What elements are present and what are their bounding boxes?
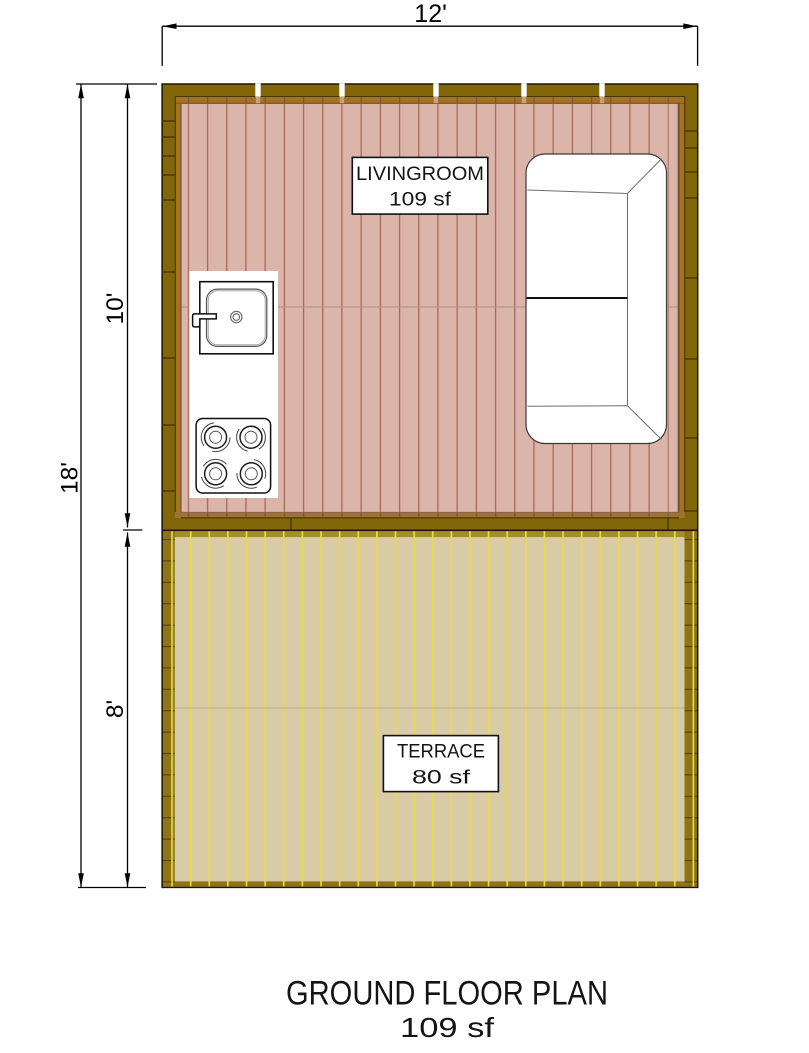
svg-text:LIVINGROOM: LIVINGROOM [356,163,484,185]
svg-text:GROUND FLOOR PLAN: GROUND FLOOR PLAN [286,975,608,1013]
svg-text:18': 18' [57,462,84,494]
svg-text:TERRACE: TERRACE [397,740,485,762]
svg-text:8': 8' [102,700,129,718]
svg-text:12': 12' [414,0,447,28]
svg-text:80 sf: 80 sf [412,766,471,788]
svg-text:10': 10' [102,293,129,325]
svg-text:109 sf: 109 sf [389,188,452,210]
svg-text:109 sf: 109 sf [400,1012,494,1043]
